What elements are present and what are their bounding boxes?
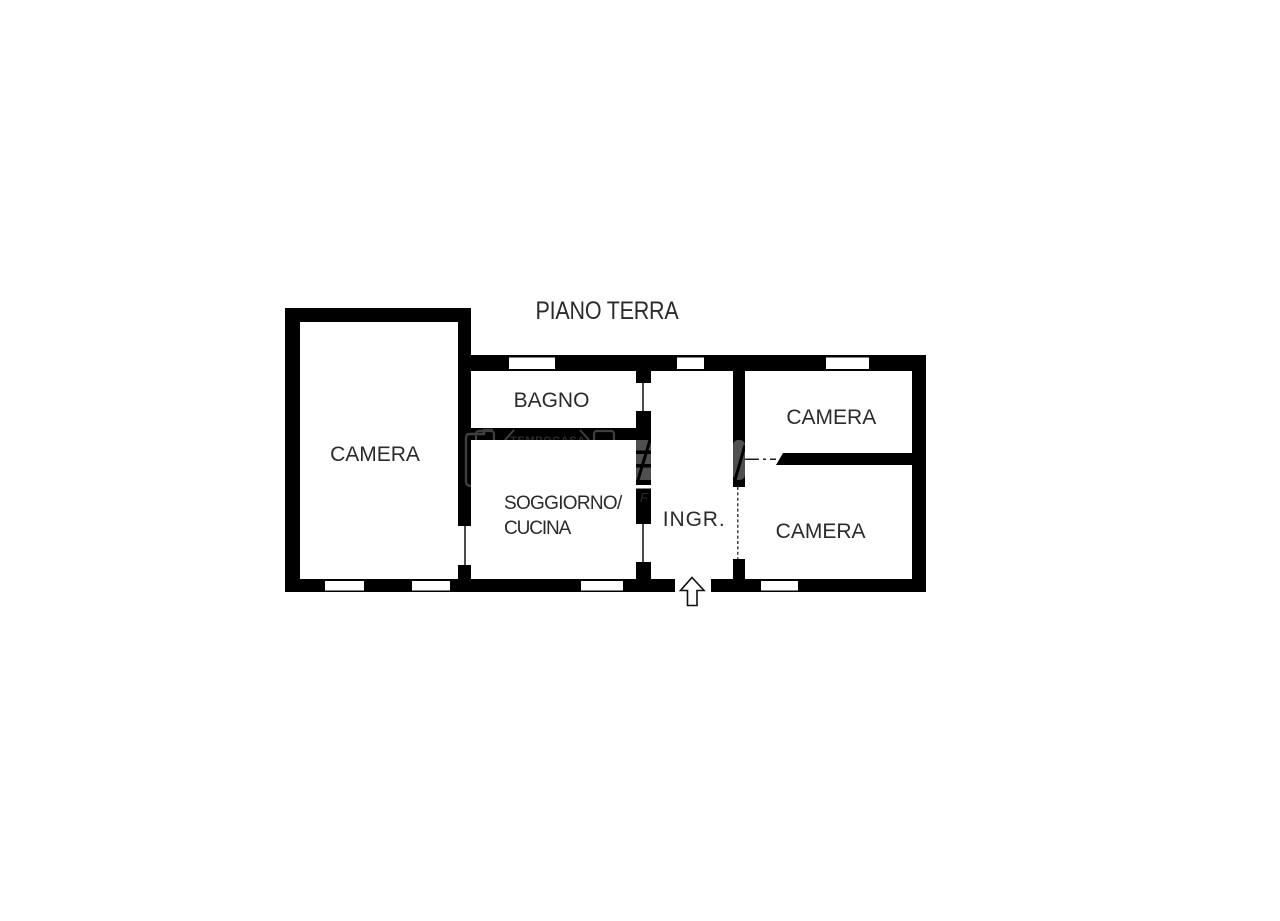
svg-text:SOGGIORNO/: SOGGIORNO/ — [504, 493, 623, 514]
svg-text:TEMPOCASA: TEMPOCASA — [510, 435, 586, 447]
svg-text:PIANO TERRA: PIANO TERRA — [535, 296, 679, 324]
svg-text:BAGNO: BAGNO — [514, 389, 590, 412]
svg-text:CUCINA: CUCINA — [504, 518, 572, 539]
svg-text:CAMERA: CAMERA — [330, 443, 420, 466]
svg-text:F: F — [640, 490, 649, 505]
svg-text:INGR.: INGR. — [663, 508, 726, 531]
svg-text:CAMERA: CAMERA — [776, 520, 866, 543]
svg-text:CAMERA: CAMERA — [786, 406, 876, 429]
